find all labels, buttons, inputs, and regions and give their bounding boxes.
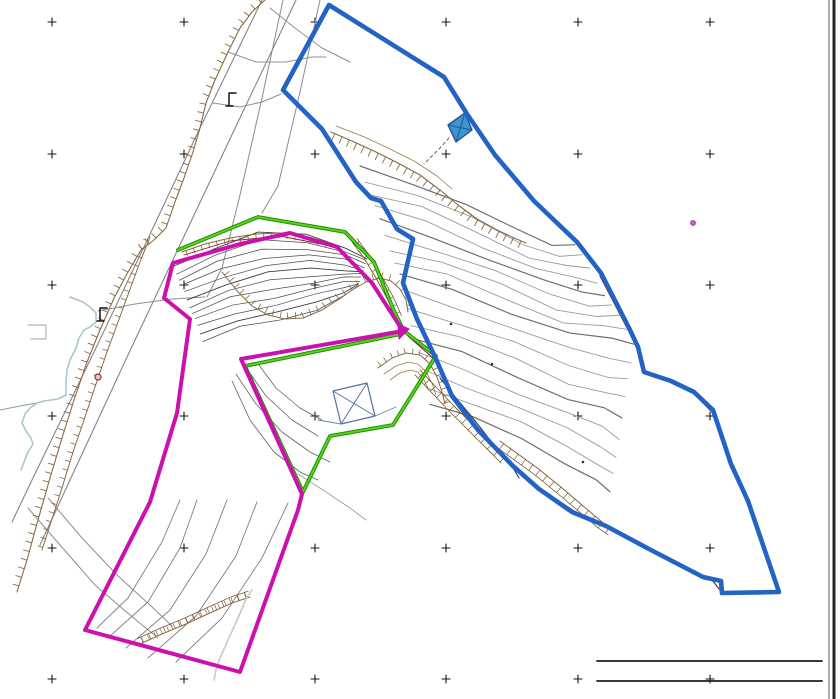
field-line-1 xyxy=(270,8,350,62)
tip-contour-4 xyxy=(148,502,257,658)
spot-dot-3 xyxy=(582,461,584,463)
south-bowl-arc-2 xyxy=(247,369,318,436)
stream xyxy=(21,297,96,470)
tip-contour-2 xyxy=(110,500,197,636)
field-line-3 xyxy=(213,94,281,107)
structure-box-ext-2 xyxy=(375,407,396,416)
site-plan-canvas[interactable] xyxy=(0,0,840,699)
field-line-2 xyxy=(228,52,326,62)
structure-box-ext-1 xyxy=(318,420,341,424)
terrace-band-tip xyxy=(138,591,250,644)
embankment-arc-west xyxy=(13,0,265,592)
magenta-point-symbol xyxy=(691,221,696,226)
magenta-boundary xyxy=(85,233,403,672)
blue-boundary xyxy=(283,5,779,593)
road-line-2 xyxy=(40,0,296,545)
field-step xyxy=(28,325,46,339)
terrace-green-east xyxy=(352,238,401,318)
terrace-band-west xyxy=(415,370,506,463)
south-bowl-arc-3 xyxy=(259,365,322,420)
drawing-viewport[interactable] xyxy=(0,0,840,699)
road-line-1 xyxy=(12,0,262,522)
track-line-a xyxy=(207,0,283,297)
green-boundary-outer xyxy=(178,217,436,492)
pole-symbol-1 xyxy=(229,93,236,105)
marker-connector xyxy=(424,138,449,164)
track-line-b xyxy=(262,0,320,213)
spot-dot-2 xyxy=(491,363,493,365)
spot-dot-1 xyxy=(450,323,452,325)
embankment-west-2 xyxy=(38,237,150,550)
track-sw-2 xyxy=(48,498,172,626)
structure-box-diag-2 xyxy=(341,383,367,424)
ridge-hachure xyxy=(222,271,413,319)
tip-contour-1 xyxy=(97,500,180,628)
grid-crosses xyxy=(48,18,714,683)
well-symbol xyxy=(95,374,101,380)
